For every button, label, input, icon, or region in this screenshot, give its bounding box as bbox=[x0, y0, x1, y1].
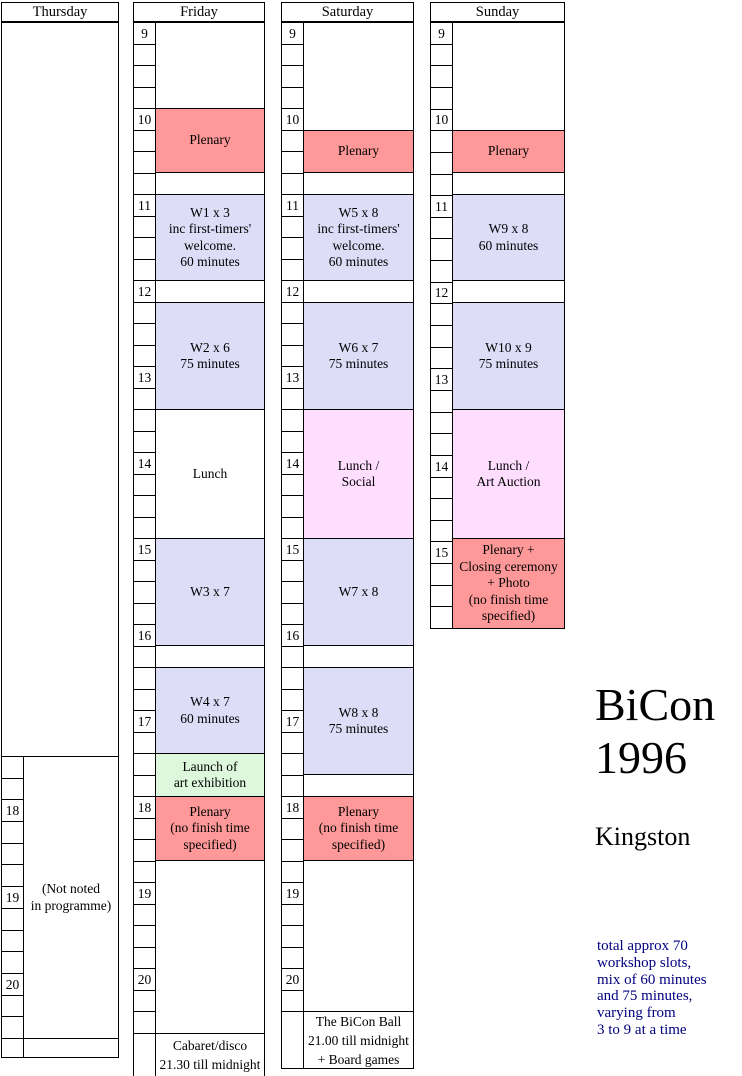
quarter-tick-cell bbox=[281, 990, 304, 1012]
event-text-line: The BiCon Ball bbox=[316, 1012, 402, 1031]
hour-label: 15 bbox=[286, 542, 300, 558]
quarter-tick-cell bbox=[281, 259, 304, 281]
event-friday-art-exhibition-launch: Launch ofart exhibition bbox=[155, 753, 265, 797]
event-text-line: specified) bbox=[482, 608, 535, 625]
quarter-tick-cell bbox=[281, 44, 304, 66]
quarter-tick-cell bbox=[1, 778, 24, 800]
event-text-line: W9 x 8 bbox=[489, 221, 529, 238]
hour-label: 12 bbox=[435, 285, 449, 301]
quarter-tick-cell bbox=[133, 409, 156, 432]
event-text-line: W3 x 7 bbox=[190, 584, 230, 601]
hour-cell-20: 20 bbox=[281, 968, 304, 991]
event-text-line: specified) bbox=[332, 837, 385, 854]
empty-cell-friday-gap bbox=[155, 172, 265, 195]
quarter-tick-cell bbox=[133, 1033, 156, 1076]
hour-cell-12: 12 bbox=[281, 280, 304, 303]
day-header-sunday: Sunday bbox=[430, 2, 565, 22]
event-text-line: W5 x 8 bbox=[339, 205, 379, 222]
hour-cell-20: 20 bbox=[1, 973, 24, 996]
quarter-tick-cell bbox=[281, 753, 304, 776]
quarter-tick-cell bbox=[281, 560, 304, 582]
hour-label: 12 bbox=[286, 284, 300, 300]
event-text-line: Lunch / bbox=[488, 458, 530, 475]
quarter-tick-cell bbox=[1, 1016, 24, 1039]
hour-label: 19 bbox=[138, 886, 152, 902]
quarter-tick-cell bbox=[133, 603, 156, 625]
event-text-line: W10 x 9 bbox=[485, 340, 532, 357]
day-header-friday: Friday bbox=[133, 2, 265, 22]
quarter-tick-cell bbox=[133, 646, 156, 668]
event-friday-workshop-w4: W4 x 760 minutes bbox=[155, 667, 265, 754]
quarter-tick-cell bbox=[281, 87, 304, 109]
quarter-tick-cell bbox=[1, 951, 24, 974]
subtitle-location: Kingston bbox=[595, 822, 715, 852]
event-text-line: 60 minutes bbox=[180, 254, 240, 271]
event-text-line: 21.30 till midnight bbox=[160, 1055, 261, 1074]
event-text-line: W2 x 6 bbox=[190, 340, 230, 357]
event-text-line: W1 x 3 bbox=[190, 205, 230, 222]
quarter-tick-cell bbox=[430, 152, 453, 175]
hour-cell-14: 14 bbox=[430, 455, 453, 478]
event-text-line: 60 minutes bbox=[180, 711, 240, 728]
event-sunday-workshop-w9: W9 x 860 minutes bbox=[452, 194, 565, 281]
hour-cell-10: 10 bbox=[430, 109, 453, 131]
hour-label: 16 bbox=[138, 628, 152, 644]
hour-cell-17: 17 bbox=[133, 710, 156, 733]
hour-label: 18 bbox=[286, 800, 300, 816]
hour-label: 17 bbox=[138, 714, 152, 730]
quarter-tick-cell bbox=[133, 947, 156, 969]
quarter-tick-cell bbox=[1, 843, 24, 865]
event-text-line: welcome. bbox=[332, 238, 384, 255]
quarter-tick-cell bbox=[430, 238, 453, 261]
hour-label: 14 bbox=[435, 459, 449, 475]
empty-cell-friday-gap-early bbox=[155, 22, 265, 109]
quarter-tick-cell bbox=[281, 495, 304, 518]
hour-label: 11 bbox=[286, 198, 299, 214]
hour-label: 18 bbox=[6, 803, 20, 819]
hour-label: 14 bbox=[286, 456, 300, 472]
event-text-line: Plenary + bbox=[482, 542, 534, 559]
quarter-tick-cell bbox=[281, 732, 304, 754]
hour-label: 15 bbox=[138, 542, 152, 558]
hour-cell-18: 18 bbox=[133, 796, 156, 819]
quarter-tick-cell bbox=[1, 821, 24, 844]
quarter-tick-cell bbox=[133, 87, 156, 109]
hour-label: 11 bbox=[435, 199, 448, 215]
hour-cell-14: 14 bbox=[133, 452, 156, 475]
quarter-tick-cell bbox=[133, 861, 156, 883]
hour-label: 12 bbox=[138, 284, 152, 300]
event-sunday-lunch-art-auction: Lunch /Art Auction bbox=[452, 409, 565, 539]
event-saturday-workshop-w5: W5 x 8inc first-timers'welcome.60 minute… bbox=[303, 194, 414, 281]
quarter-tick-cell bbox=[133, 474, 156, 496]
quarter-tick-cell bbox=[281, 775, 304, 797]
hour-label: 13 bbox=[286, 370, 300, 386]
quarter-tick-cell bbox=[133, 667, 156, 690]
event-text-line: (no finish time bbox=[469, 592, 549, 609]
note-line: 3 to 9 at a time bbox=[597, 1022, 707, 1039]
quarter-tick-cell bbox=[133, 818, 156, 840]
hour-cell-14: 14 bbox=[281, 452, 304, 475]
quarter-tick-cell bbox=[281, 65, 304, 88]
event-friday-lunch: Lunch bbox=[155, 409, 265, 539]
event-text-line: specified) bbox=[183, 837, 236, 854]
hour-label: 9 bbox=[141, 26, 148, 42]
bicon-1996-timetable: Thursday181920(Not notedin programme)Fri… bbox=[0, 0, 742, 1076]
event-sunday-plenary-morning: Plenary bbox=[452, 130, 565, 173]
event-text-line: Social bbox=[342, 474, 376, 491]
quarter-tick-cell bbox=[281, 302, 304, 324]
quarter-tick-cell bbox=[281, 323, 304, 346]
event-text-line: art exhibition bbox=[174, 775, 246, 792]
event-friday-workshop-w1: W1 x 3inc first-timers'welcome.60 minute… bbox=[155, 194, 265, 281]
quarter-tick-cell bbox=[133, 388, 156, 410]
hour-label: 13 bbox=[138, 370, 152, 386]
quarter-tick-cell bbox=[281, 431, 304, 453]
quarter-tick-cell bbox=[430, 606, 453, 629]
quarter-tick-cell bbox=[430, 130, 453, 153]
hour-label: 19 bbox=[6, 890, 20, 906]
quarter-tick-cell bbox=[430, 174, 453, 196]
quarter-tick-cell bbox=[1, 1038, 24, 1058]
quarter-tick-cell bbox=[281, 603, 304, 625]
quarter-tick-cell bbox=[133, 581, 156, 604]
event-text-line: Lunch / bbox=[338, 458, 380, 475]
quarter-tick-cell bbox=[281, 345, 304, 367]
hour-label: 18 bbox=[138, 800, 152, 816]
quarter-tick-cell bbox=[281, 646, 304, 668]
quarter-tick-cell bbox=[430, 65, 453, 88]
quarter-tick-cell bbox=[281, 818, 304, 840]
event-text-line: W6 x 7 bbox=[339, 340, 379, 357]
event-text-line: 60 minutes bbox=[329, 254, 389, 271]
quarter-tick-cell bbox=[133, 216, 156, 238]
hour-cell-10: 10 bbox=[281, 108, 304, 131]
event-text-line: 21.00 till midnight bbox=[308, 1031, 409, 1050]
event-friday-workshop-w2: W2 x 675 minutes bbox=[155, 302, 265, 410]
quarter-tick-cell bbox=[430, 412, 453, 434]
quarter-tick-cell bbox=[133, 732, 156, 754]
hour-cell-15: 15 bbox=[281, 538, 304, 561]
quarter-tick-cell bbox=[281, 667, 304, 690]
hour-label: 14 bbox=[138, 456, 152, 472]
quarter-tick-cell bbox=[281, 947, 304, 969]
empty-cell-saturday-gap bbox=[303, 172, 414, 195]
event-text-line: + Board games bbox=[318, 1050, 400, 1069]
hour-label: 13 bbox=[435, 372, 449, 388]
event-text-line: in programme) bbox=[31, 898, 112, 915]
quarter-tick-cell bbox=[133, 904, 156, 926]
hour-cell-17: 17 bbox=[281, 710, 304, 733]
quarter-tick-cell bbox=[1, 930, 24, 952]
quarter-tick-cell bbox=[133, 130, 156, 152]
quarter-tick-cell bbox=[430, 87, 453, 110]
event-saturday-workshop-w8: W8 x 875 minutes bbox=[303, 667, 414, 775]
quarter-tick-cell bbox=[133, 689, 156, 711]
event-saturday-plenary-evening: Plenary(no finish timespecified) bbox=[303, 796, 414, 861]
event-text-line: 60 minutes bbox=[479, 238, 539, 255]
quarter-tick-cell bbox=[281, 237, 304, 260]
quarter-tick-cell bbox=[430, 325, 453, 348]
empty-cell-saturday-gap bbox=[303, 774, 414, 797]
event-saturday-plenary-morning: Plenary bbox=[303, 130, 414, 173]
hour-cell-18: 18 bbox=[281, 796, 304, 819]
quarter-tick-cell bbox=[281, 216, 304, 238]
empty-cell-sunday-gap bbox=[452, 280, 565, 303]
event-text-line: Launch of bbox=[182, 759, 237, 776]
hour-cell-11: 11 bbox=[430, 195, 453, 218]
event-text-line: Plenary bbox=[338, 143, 379, 160]
hour-label: 9 bbox=[289, 26, 296, 42]
event-text-line: W8 x 8 bbox=[339, 705, 379, 722]
quarter-tick-cell bbox=[430, 390, 453, 413]
quarter-tick-cell bbox=[133, 173, 156, 195]
hour-label: 20 bbox=[286, 972, 300, 988]
day-header-label: Sunday bbox=[476, 4, 520, 21]
quarter-tick-cell bbox=[281, 581, 304, 604]
quarter-tick-cell bbox=[133, 990, 156, 1012]
empty-cell-friday-gap bbox=[155, 280, 265, 303]
quarter-tick-cell bbox=[133, 259, 156, 281]
quarter-tick-cell bbox=[281, 925, 304, 948]
event-saturday-lunch-social: Lunch /Social bbox=[303, 409, 414, 539]
quarter-tick-cell bbox=[133, 560, 156, 582]
event-friday-plenary-morning: Plenary bbox=[155, 108, 265, 173]
quarter-tick-cell bbox=[430, 347, 453, 369]
quarter-tick-cell bbox=[281, 517, 304, 539]
quarter-tick-cell bbox=[133, 44, 156, 66]
quarter-tick-cell bbox=[133, 1011, 156, 1034]
quarter-tick-cell bbox=[133, 925, 156, 948]
event-text-line: (no finish time bbox=[319, 820, 399, 837]
event-saturday-workshop-w6: W6 x 775 minutes bbox=[303, 302, 414, 410]
quarter-tick-cell bbox=[1, 995, 24, 1017]
note-line: workshop slots, bbox=[597, 955, 707, 972]
empty-cell-saturday-gap-early bbox=[303, 22, 414, 131]
hour-label: 9 bbox=[438, 26, 445, 42]
hour-label: 10 bbox=[138, 112, 152, 128]
quarter-tick-cell bbox=[281, 173, 304, 195]
hour-cell-13: 13 bbox=[430, 368, 453, 391]
quarter-tick-cell bbox=[133, 345, 156, 367]
quarter-tick-cell bbox=[281, 388, 304, 410]
hour-label: 15 bbox=[435, 545, 449, 561]
event-text-line: Plenary bbox=[488, 143, 529, 160]
event-text-line: + Photo bbox=[487, 575, 530, 592]
event-text-line: W7 x 8 bbox=[339, 584, 379, 601]
hour-cell-20: 20 bbox=[133, 968, 156, 991]
title-line2: 1996 bbox=[595, 731, 715, 784]
event-text-line: Plenary bbox=[189, 804, 230, 821]
hour-cell-19: 19 bbox=[1, 886, 24, 909]
hour-label: 17 bbox=[286, 714, 300, 730]
event-text-line: inc first-timers' bbox=[169, 221, 251, 238]
quarter-tick-cell bbox=[281, 1011, 304, 1069]
empty-cell-friday-gap bbox=[155, 645, 265, 668]
event-text-line: 75 minutes bbox=[329, 721, 389, 738]
event-text-line: (no finish time bbox=[170, 820, 250, 837]
hour-cell-12: 12 bbox=[133, 280, 156, 303]
quarter-tick-cell bbox=[133, 775, 156, 797]
event-text-line: Closing ceremony bbox=[459, 559, 558, 576]
quarter-tick-cell bbox=[281, 861, 304, 883]
empty-cell-thursday-empty-day-area bbox=[1, 22, 119, 757]
hour-cell-9: 9 bbox=[430, 22, 453, 45]
hour-cell-15: 15 bbox=[133, 538, 156, 561]
hour-cell-15: 15 bbox=[430, 541, 453, 564]
empty-cell-thursday-bottom-empty bbox=[23, 1038, 119, 1058]
title-line1: BiCon bbox=[595, 678, 715, 731]
event-text-line: Plenary bbox=[338, 804, 379, 821]
quarter-tick-cell bbox=[430, 477, 453, 499]
hour-cell-19: 19 bbox=[133, 882, 156, 905]
empty-cell-saturday-gap bbox=[303, 645, 414, 668]
event-text-line: W4 x 7 bbox=[190, 694, 230, 711]
event-text-line: Art Auction bbox=[476, 474, 540, 491]
quarter-tick-cell bbox=[133, 753, 156, 776]
event-text-line: 75 minutes bbox=[180, 356, 240, 373]
hour-cell-9: 9 bbox=[281, 22, 304, 45]
hour-label: 10 bbox=[435, 112, 449, 128]
empty-cell-saturday-gap-evening bbox=[303, 860, 414, 1012]
event-text-line: welcome. bbox=[184, 238, 236, 255]
quarter-tick-cell bbox=[1, 908, 24, 931]
quarter-tick-cell bbox=[430, 563, 453, 586]
quarter-tick-cell bbox=[133, 517, 156, 539]
quarter-tick-cell bbox=[133, 495, 156, 518]
hour-cell-9: 9 bbox=[133, 22, 156, 45]
hour-cell-10: 10 bbox=[133, 108, 156, 131]
hour-cell-13: 13 bbox=[281, 366, 304, 389]
quarter-tick-cell bbox=[281, 474, 304, 496]
event-friday-cabaret-disco: Cabaret/disco21.30 till midnight bbox=[155, 1033, 265, 1076]
empty-cell-sunday-gap-early bbox=[452, 22, 565, 131]
hour-label: 20 bbox=[138, 972, 152, 988]
quarter-tick-cell bbox=[133, 151, 156, 174]
quarter-tick-cell bbox=[1, 864, 24, 887]
hour-cell-19: 19 bbox=[281, 882, 304, 905]
empty-cell-friday-gap-evening bbox=[155, 860, 265, 1034]
note-line: and 75 minutes, bbox=[597, 988, 707, 1005]
note-line: mix of 60 minutes bbox=[597, 972, 707, 989]
quarter-tick-cell bbox=[281, 409, 304, 432]
empty-cell-sunday-gap bbox=[452, 172, 565, 195]
day-header-label: Friday bbox=[180, 4, 218, 21]
quarter-tick-cell bbox=[281, 904, 304, 926]
event-text-line: Plenary bbox=[189, 132, 230, 149]
hour-label: 10 bbox=[286, 112, 300, 128]
workshop-summary-note: total approx 70workshop slots,mix of 60 … bbox=[597, 938, 707, 1039]
quarter-tick-cell bbox=[430, 433, 453, 456]
event-saturday-workshop-w7: W7 x 8 bbox=[303, 538, 414, 646]
hour-cell-16: 16 bbox=[281, 624, 304, 647]
event-thursday-not-noted: (Not notedin programme) bbox=[23, 756, 119, 1039]
quarter-tick-cell bbox=[430, 498, 453, 521]
quarter-tick-cell bbox=[281, 839, 304, 862]
quarter-tick-cell bbox=[133, 237, 156, 260]
day-header-saturday: Saturday bbox=[281, 2, 414, 22]
quarter-tick-cell bbox=[430, 217, 453, 239]
event-text-line: (Not noted bbox=[42, 881, 100, 898]
hour-label: 11 bbox=[138, 198, 151, 214]
quarter-tick-cell bbox=[430, 520, 453, 542]
note-line: varying from bbox=[597, 1005, 707, 1022]
quarter-tick-cell bbox=[281, 151, 304, 174]
quarter-tick-cell bbox=[133, 839, 156, 862]
empty-cell-saturday-gap bbox=[303, 280, 414, 303]
day-header-label: Saturday bbox=[322, 4, 374, 21]
quarter-tick-cell bbox=[133, 302, 156, 324]
hour-label: 19 bbox=[286, 886, 300, 902]
event-text-line: 75 minutes bbox=[329, 356, 389, 373]
quarter-tick-cell bbox=[133, 431, 156, 453]
day-header-thursday: Thursday bbox=[1, 2, 119, 22]
event-title: BiCon 1996 Kingston bbox=[595, 678, 715, 852]
day-header-label: Thursday bbox=[33, 4, 88, 21]
quarter-tick-cell bbox=[430, 303, 453, 326]
event-text-line: inc first-timers' bbox=[317, 221, 399, 238]
event-friday-workshop-w3: W3 x 7 bbox=[155, 538, 265, 646]
hour-cell-13: 13 bbox=[133, 366, 156, 389]
hour-cell-11: 11 bbox=[281, 194, 304, 217]
quarter-tick-cell bbox=[430, 585, 453, 607]
quarter-tick-cell bbox=[430, 44, 453, 66]
hour-cell-18: 18 bbox=[1, 799, 24, 822]
hour-cell-11: 11 bbox=[133, 194, 156, 217]
event-text-line: 75 minutes bbox=[479, 356, 539, 373]
quarter-tick-cell bbox=[281, 130, 304, 152]
quarter-tick-cell bbox=[133, 65, 156, 88]
event-sunday-workshop-w10: W10 x 975 minutes bbox=[452, 302, 565, 410]
event-sunday-closing-plenary: Plenary +Closing ceremony+ Photo(no fini… bbox=[452, 538, 565, 629]
hour-cell-16: 16 bbox=[133, 624, 156, 647]
quarter-tick-cell bbox=[1, 756, 24, 779]
hour-cell-12: 12 bbox=[430, 282, 453, 304]
hour-label: 20 bbox=[6, 977, 20, 993]
quarter-tick-cell bbox=[281, 689, 304, 711]
event-friday-plenary-evening: Plenary(no finish timespecified) bbox=[155, 796, 265, 861]
quarter-tick-cell bbox=[133, 323, 156, 346]
event-text-line: Cabaret/disco bbox=[173, 1036, 247, 1055]
hour-label: 16 bbox=[286, 628, 300, 644]
quarter-tick-cell bbox=[430, 260, 453, 283]
event-saturday-bicon-ball: The BiCon Ball21.00 till midnight+ Board… bbox=[303, 1011, 414, 1069]
note-line: total approx 70 bbox=[597, 938, 707, 955]
event-text-line: Lunch bbox=[193, 466, 228, 483]
